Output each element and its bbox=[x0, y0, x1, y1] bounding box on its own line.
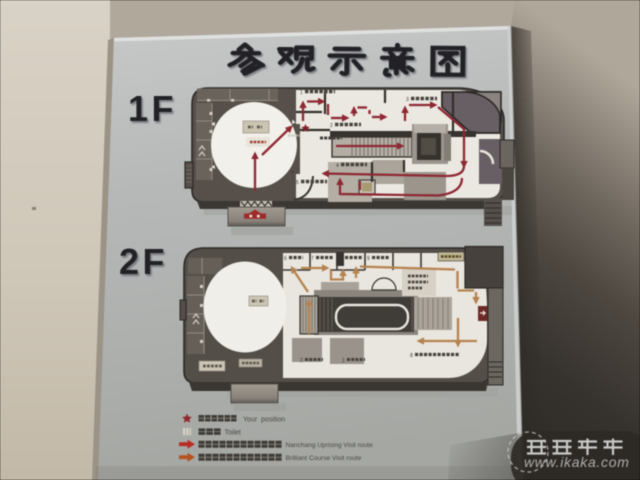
svg-text:4: 4 bbox=[336, 163, 339, 169]
svg-text:3: 3 bbox=[406, 97, 409, 103]
svg-text:2: 2 bbox=[300, 358, 303, 364]
svg-text:7: 7 bbox=[311, 256, 314, 262]
svg-text:Nanchang Uprising Visit route: Nanchang Uprising Visit route bbox=[286, 442, 373, 449]
svg-text:6: 6 bbox=[284, 256, 287, 262]
svg-text:Toilet: Toilet bbox=[225, 430, 241, 437]
svg-text:8: 8 bbox=[340, 256, 343, 262]
svg-text:2: 2 bbox=[330, 123, 333, 129]
svg-text:Brilliant Course Visit route: Brilliant Course Visit route bbox=[286, 455, 362, 462]
svg-text:8: 8 bbox=[410, 353, 413, 359]
svg-text:1: 1 bbox=[300, 90, 303, 96]
svg-text:1F: 1F bbox=[128, 88, 177, 129]
svg-text:1: 1 bbox=[342, 358, 345, 364]
svg-text:2F: 2F bbox=[119, 241, 168, 282]
svg-text:Your position: Your position bbox=[243, 416, 285, 423]
svg-text:5: 5 bbox=[296, 180, 299, 186]
svg-text:www.ikaka.com: www.ikaka.com bbox=[524, 454, 630, 470]
svg-text:9: 9 bbox=[367, 256, 370, 262]
